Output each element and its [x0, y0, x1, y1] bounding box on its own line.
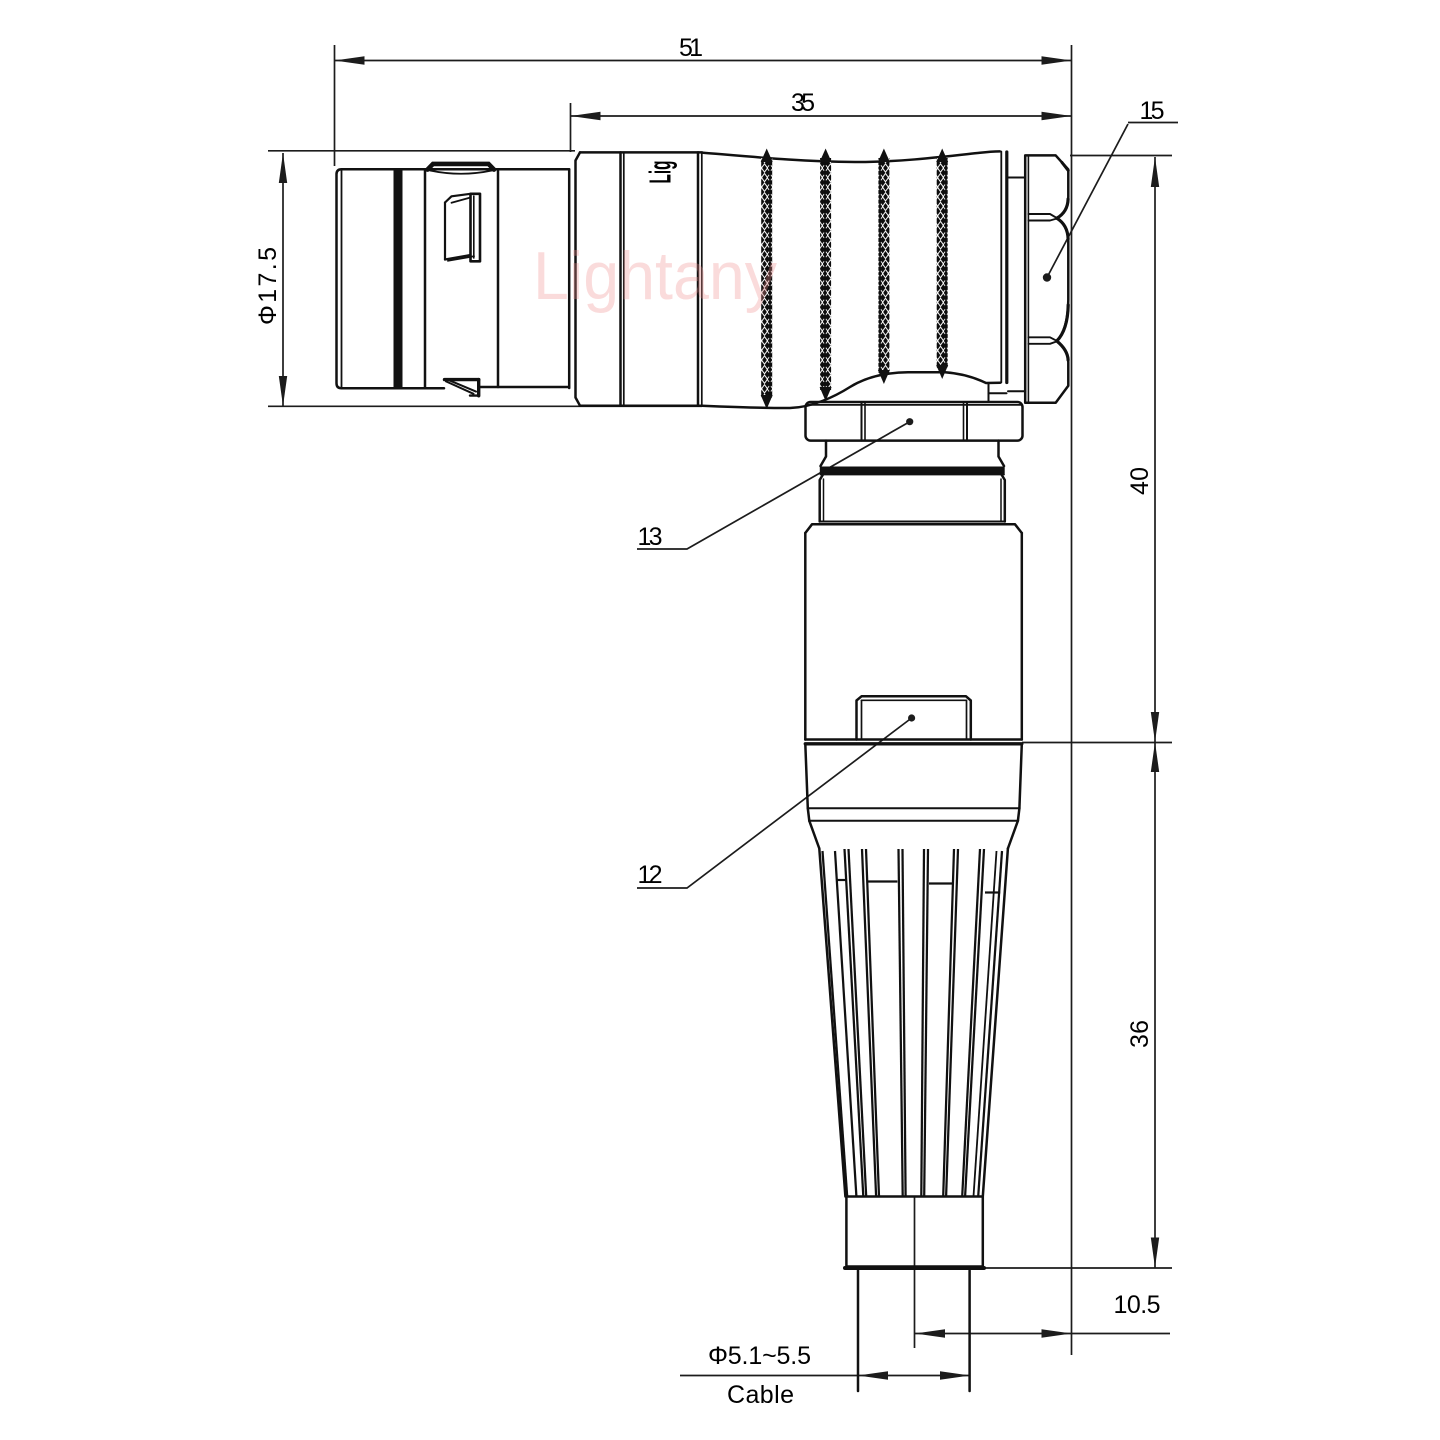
svg-text:12: 12 [638, 861, 663, 889]
svg-text:51: 51 [679, 34, 703, 62]
svg-text:Φ17.5: Φ17.5 [254, 247, 282, 325]
svg-text:Lightany: Lightany [533, 238, 777, 314]
svg-text:Lig: Lig [644, 161, 678, 184]
svg-text:13: 13 [638, 523, 663, 551]
svg-text:36: 36 [1126, 1020, 1154, 1048]
svg-text:35: 35 [791, 89, 815, 117]
svg-text:10.5: 10.5 [1114, 1291, 1161, 1319]
svg-text:Φ5.1~5.5: Φ5.1~5.5 [708, 1342, 811, 1370]
svg-text:Cable: Cable [727, 1381, 794, 1409]
svg-text:15: 15 [1140, 97, 1165, 125]
svg-text:40: 40 [1126, 467, 1154, 495]
